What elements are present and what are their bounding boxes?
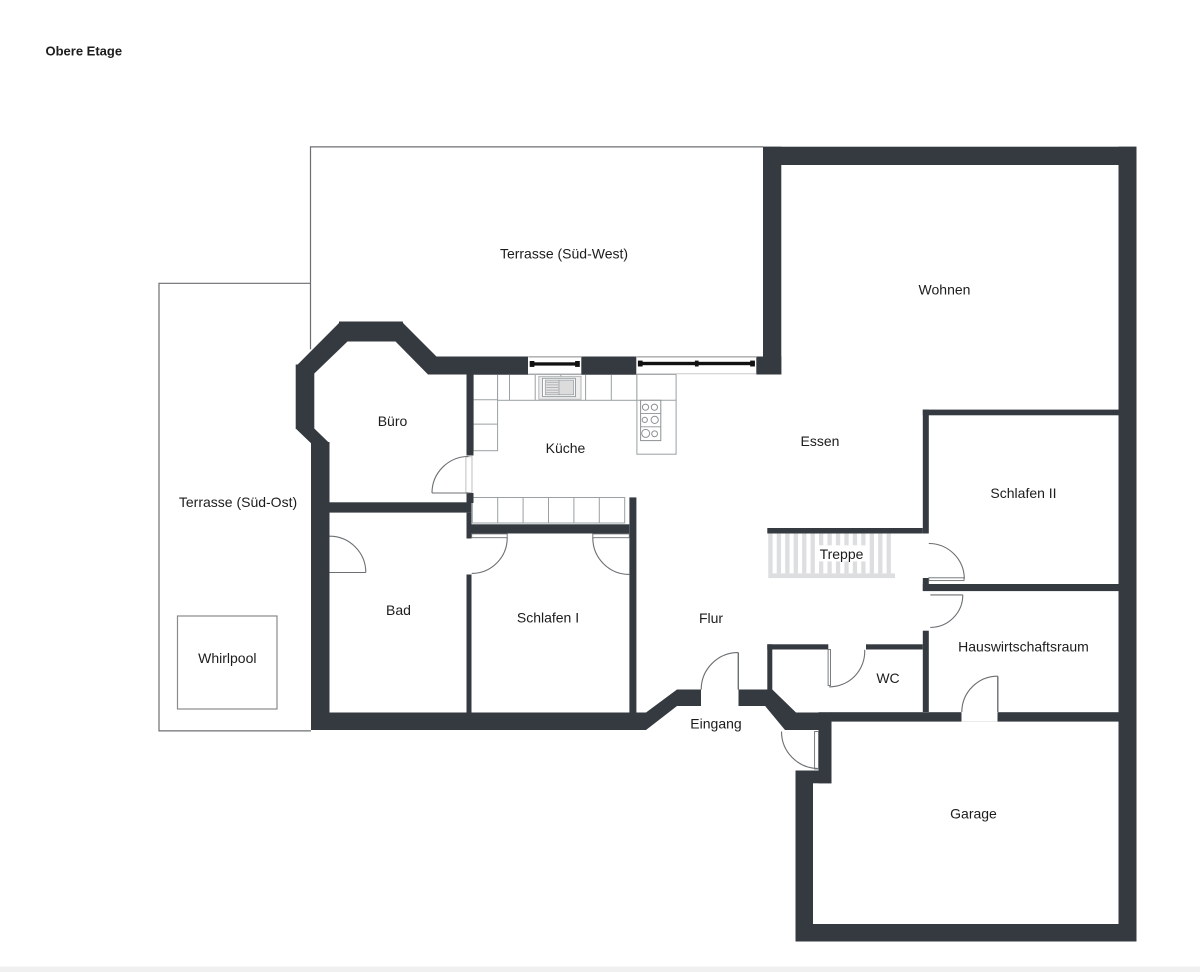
svg-text:Bad: Bad [386, 602, 411, 618]
svg-text:Garage: Garage [950, 806, 997, 822]
svg-text:Treppe: Treppe [820, 546, 864, 562]
svg-text:Küche: Küche [546, 440, 586, 456]
svg-text:WC: WC [876, 670, 899, 686]
svg-text:Eingang: Eingang [690, 716, 741, 732]
svg-text:Wohnen: Wohnen [919, 282, 971, 298]
svg-text:Schlafen II: Schlafen II [990, 485, 1056, 501]
svg-text:Terrasse (Süd-Ost): Terrasse (Süd-Ost) [179, 494, 297, 510]
svg-text:Whirlpool: Whirlpool [198, 650, 256, 666]
svg-text:Schlafen I: Schlafen I [517, 610, 579, 626]
svg-text:Flur: Flur [699, 610, 723, 626]
svg-text:Obere Etage: Obere Etage [46, 44, 123, 59]
svg-text:Terrasse (Süd-West): Terrasse (Süd-West) [500, 246, 628, 262]
svg-text:Essen: Essen [801, 433, 840, 449]
svg-text:Hauswirtschaftsraum: Hauswirtschaftsraum [958, 639, 1089, 655]
svg-text:Büro: Büro [378, 413, 408, 429]
